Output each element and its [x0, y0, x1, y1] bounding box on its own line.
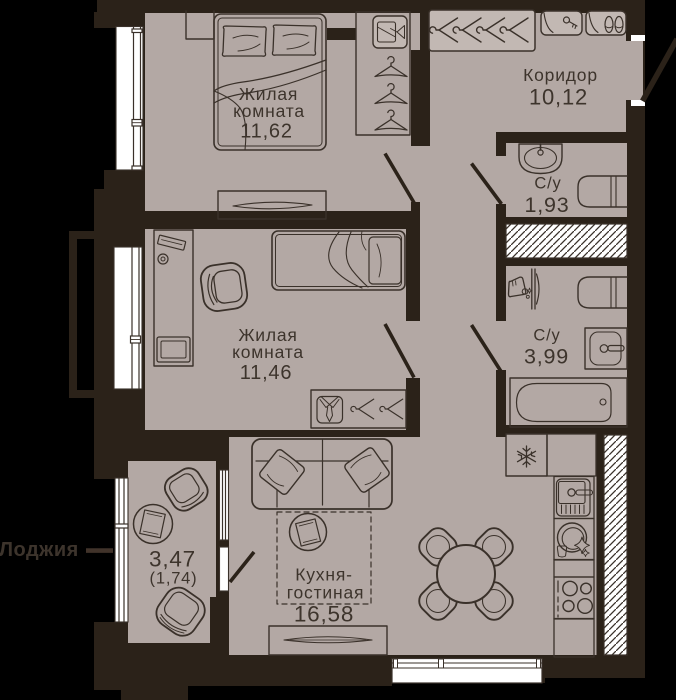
svg-text:Кухня-: Кухня- — [295, 565, 352, 585]
svg-text:С/у: С/у — [533, 327, 560, 345]
svg-text:гостиная: гостиная — [287, 583, 365, 603]
svg-text:(1,74): (1,74) — [150, 570, 198, 588]
svg-text:10,12: 10,12 — [529, 85, 588, 110]
svg-text:1,93: 1,93 — [524, 193, 569, 217]
svg-text:16,58: 16,58 — [294, 602, 354, 627]
svg-text:С/у: С/у — [534, 175, 561, 193]
svg-text:11,62: 11,62 — [240, 121, 293, 143]
svg-text:11,46: 11,46 — [240, 362, 293, 384]
svg-text:комната: комната — [232, 342, 304, 362]
svg-text:Лоджия: Лоджия — [0, 539, 79, 561]
svg-text:Коридор: Коридор — [523, 65, 598, 85]
svg-text:3,47: 3,47 — [149, 547, 196, 572]
svg-text:3,99: 3,99 — [524, 345, 569, 369]
